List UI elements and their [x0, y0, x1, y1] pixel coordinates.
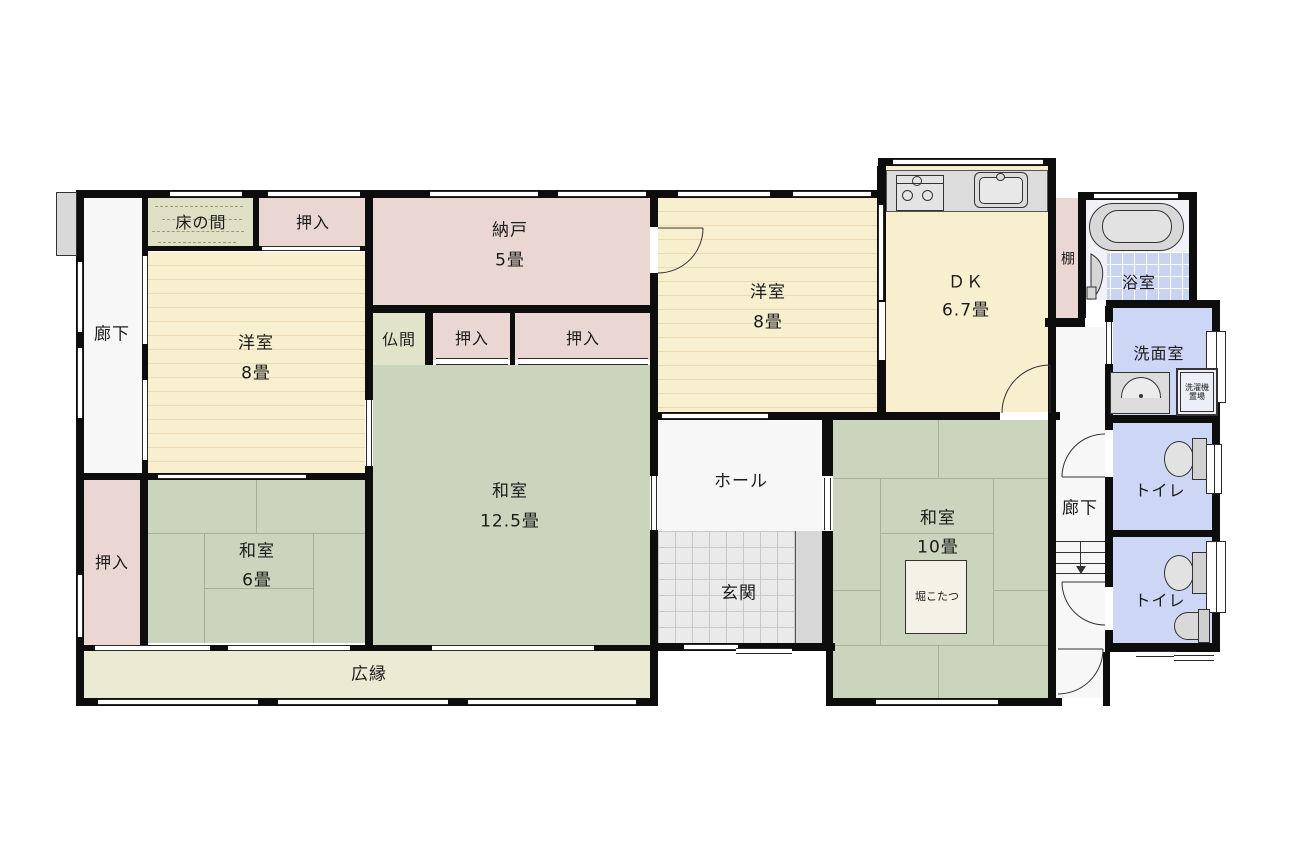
window	[77, 575, 83, 637]
tatami-line	[993, 590, 1048, 591]
wall	[650, 198, 658, 227]
sliding-door	[366, 400, 372, 466]
label-western-2-name: 洋室	[750, 278, 786, 303]
burner-icon	[912, 176, 922, 186]
window	[77, 262, 83, 332]
sliding-door	[432, 645, 594, 651]
wall	[1048, 158, 1056, 706]
sliding-door	[262, 246, 360, 251]
sliding-door	[228, 645, 350, 651]
label-hall: ホール	[714, 467, 768, 492]
window	[268, 191, 360, 197]
vanity-drain	[1139, 394, 1143, 398]
label-toilet-1: トイレ	[1134, 477, 1185, 501]
entrance-sliding-door	[684, 644, 738, 650]
wall	[253, 198, 259, 248]
label-bathroom: 浴室	[1122, 269, 1156, 293]
wall	[650, 530, 658, 651]
door-opening	[878, 302, 886, 360]
sliding-door	[824, 478, 831, 530]
label-corridor-right: 廊下	[1062, 494, 1098, 519]
wall	[826, 643, 833, 706]
kitchen-window	[893, 159, 1043, 165]
tokonoma-grain	[158, 242, 236, 243]
label-entrance: 玄関	[721, 579, 757, 604]
label-western-1-name: 洋室	[238, 329, 274, 354]
stairs-down-arrow	[1076, 566, 1086, 574]
sliding-door	[662, 413, 768, 419]
window	[558, 191, 646, 197]
wall	[1106, 300, 1220, 308]
wall	[365, 198, 373, 246]
label-western-1-size: 8畳	[241, 359, 271, 384]
label-corridor-left: 廊下	[94, 320, 130, 345]
label-kotatsu: 堀こたつ	[915, 588, 959, 604]
window	[170, 191, 242, 197]
sink-basin	[979, 177, 1023, 204]
service-sliding-door	[1136, 651, 1176, 657]
wall	[76, 473, 148, 480]
wall	[1189, 192, 1197, 308]
door-opening	[1000, 412, 1048, 420]
label-japanese-12-size: 12.5畳	[480, 507, 540, 532]
wall	[650, 412, 658, 476]
toilet-tank-icon	[1192, 552, 1207, 594]
wall	[1045, 318, 1085, 327]
wall	[650, 645, 658, 706]
tatami-line	[993, 478, 994, 645]
label-japanese-10-size: 10畳	[917, 533, 959, 558]
wall	[365, 246, 373, 400]
wall	[1105, 415, 1212, 423]
label-toilet-2: トイレ	[1134, 587, 1185, 611]
corner-sink-icon	[1174, 612, 1200, 640]
tatami-line	[938, 645, 939, 698]
laundry-label-line1: 洗濯機	[1185, 383, 1209, 392]
burner-icon	[902, 190, 913, 201]
wall	[1103, 652, 1110, 706]
label-storage-size: 5畳	[495, 246, 525, 271]
tatami-line	[880, 478, 881, 645]
faucet-icon	[996, 173, 1005, 181]
label-butsuma: 仏間	[382, 326, 416, 350]
label-japanese-6-name: 和室	[239, 537, 275, 562]
label-closet-top-left: 押入	[296, 209, 330, 233]
exterior-storage-box	[56, 192, 77, 256]
burner-icon	[922, 190, 933, 201]
label-shelf: 棚	[1057, 251, 1077, 265]
sliding-door	[142, 256, 148, 344]
room-western-2	[658, 198, 877, 412]
sliding-door	[95, 645, 210, 651]
wall	[1078, 192, 1086, 318]
wall	[650, 273, 658, 412]
tatami-line	[256, 478, 257, 533]
window	[878, 205, 884, 300]
wall	[1105, 530, 1212, 537]
window	[876, 699, 998, 705]
label-japanese-12-name: 和室	[492, 477, 528, 502]
stove-line	[896, 183, 944, 184]
label-western-2-size: 8畳	[753, 308, 783, 333]
window	[678, 191, 770, 197]
sliding-door	[436, 358, 508, 365]
bath-window	[1094, 193, 1178, 199]
label-closet-b: 押入	[566, 325, 600, 349]
bathtub-inner	[1102, 210, 1172, 243]
corner-sink-tank	[1198, 609, 1210, 643]
tatami-line	[938, 420, 939, 478]
label-dk-size: 6.7畳	[942, 296, 990, 321]
tatami-line	[313, 533, 314, 643]
room-japanese-12	[373, 365, 650, 645]
window	[1206, 444, 1222, 494]
sliding-door	[518, 358, 648, 365]
window	[1206, 541, 1226, 613]
label-closet-bottom-left: 押入	[95, 549, 129, 573]
wall	[1105, 306, 1113, 322]
wall	[822, 420, 833, 476]
washing-machine-space-inner: 洗濯機 置場	[1180, 372, 1214, 412]
sliding-door	[158, 474, 306, 479]
window	[98, 699, 258, 705]
label-storage-name: 納戸	[492, 216, 528, 241]
tokonoma-grain	[155, 206, 243, 207]
label-tokonoma: 床の間	[175, 209, 226, 233]
bath-door-bay	[1086, 252, 1107, 300]
wall	[140, 478, 148, 648]
toilet-tank-icon	[1192, 438, 1207, 480]
stairs-center-line	[1080, 541, 1081, 567]
tatami-line	[833, 478, 1048, 479]
tatami-line	[833, 645, 1048, 646]
label-veranda: 広縁	[351, 660, 387, 685]
wall	[425, 313, 433, 365]
label-closet-a: 押入	[455, 325, 489, 349]
window	[278, 699, 448, 705]
entrance-step	[795, 531, 822, 643]
label-japanese-6-size: 6畳	[242, 566, 272, 591]
tatami-line	[833, 590, 880, 591]
laundry-label-line2: 置場	[1189, 392, 1205, 401]
sliding-door	[1106, 322, 1112, 364]
toilet-icon	[1164, 555, 1194, 591]
window	[468, 699, 636, 705]
room-japanese-10	[833, 420, 1048, 698]
window	[793, 191, 871, 197]
sliding-door	[651, 476, 657, 530]
wall	[822, 531, 833, 643]
toilet-icon	[1164, 441, 1194, 477]
service-sliding-door	[1174, 655, 1214, 661]
label-washroom: 洗面室	[1133, 340, 1184, 364]
sliding-door	[142, 380, 148, 460]
wall	[510, 313, 515, 365]
floor-plan: 洗濯機 置場 廊下 床の間 押入 洋室 8畳 納戸 5畳 仏間 押入 押入 洋室	[0, 0, 1300, 868]
window	[430, 191, 538, 197]
wall	[373, 305, 650, 313]
entrance-sliding-door	[736, 648, 792, 654]
wall	[365, 466, 373, 645]
window	[77, 348, 83, 418]
label-dk-name: ＤＫ	[948, 268, 984, 293]
tatami-line	[148, 533, 365, 534]
label-japanese-10-name: 和室	[920, 504, 956, 529]
